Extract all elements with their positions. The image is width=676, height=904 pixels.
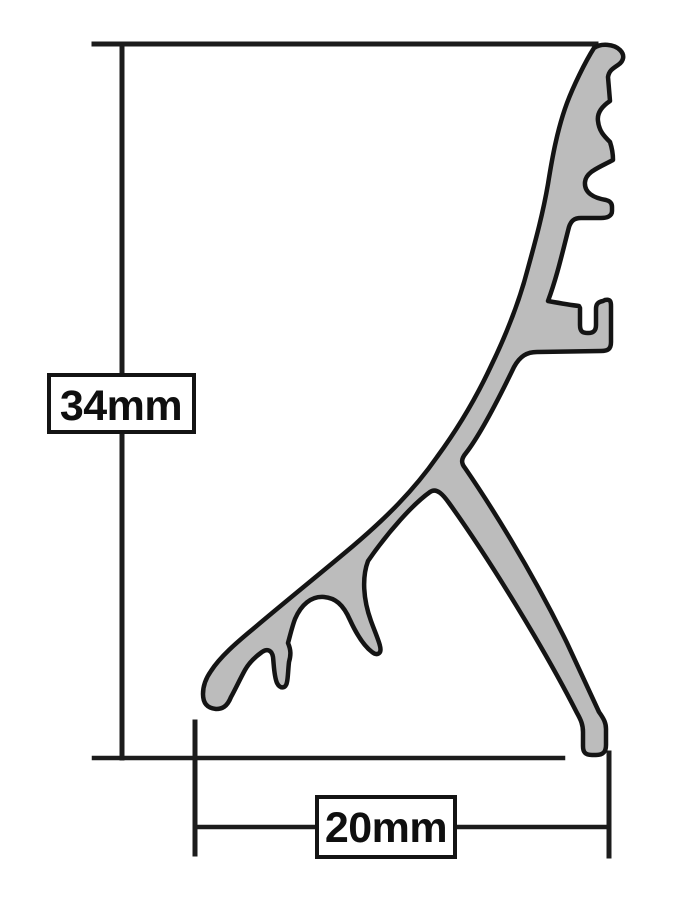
profile-cross-section	[203, 45, 623, 755]
diagram-canvas: 34mm 20mm	[0, 0, 676, 904]
profile-dimension-drawing: 34mm 20mm	[0, 0, 676, 904]
width-dimension-label: 20mm	[325, 804, 447, 852]
height-dimension-label: 34mm	[60, 382, 182, 430]
